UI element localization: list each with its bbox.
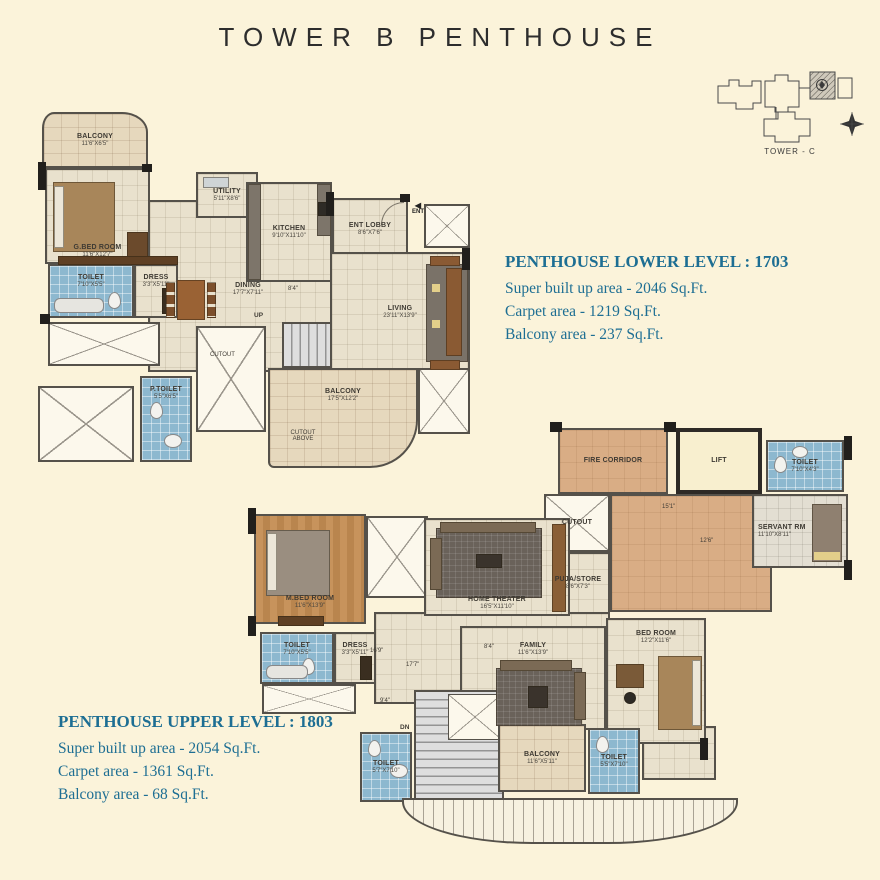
key-plan: TOWER - C	[712, 66, 868, 158]
room-p-toilet: P.TOILET 5'5"X6'5"	[140, 376, 192, 462]
wall-segment	[550, 422, 562, 432]
room-toilet-gbed: TOILET 7'10"X5'5"	[48, 264, 134, 318]
room-toilet-mbed: TOILET 7'10"X5'5"	[260, 632, 334, 684]
entrance-label: ENT	[412, 209, 424, 215]
cabinet-furniture	[552, 524, 566, 612]
page-title: TOWER B PENTHOUSE	[0, 22, 880, 53]
basin-icon	[792, 446, 808, 458]
bed-pillows	[54, 186, 64, 248]
room-label: KITCHEN	[273, 225, 306, 233]
room-dim: 5'11"X8'6"	[214, 196, 241, 203]
room-balcony-upper: BALCONY 11'6"X5'11"	[498, 724, 586, 792]
fire-corridor-floor	[610, 494, 772, 612]
room-label: SERVANT RM	[758, 524, 806, 532]
sofa-furniture	[500, 660, 572, 671]
room-m-bedroom: M.BED ROOM 11'6"X13'9"	[254, 514, 366, 624]
page: TOWER B PENTHOUSE	[0, 0, 880, 880]
upper-level-carpet: Carpet area - 1361 Sq.Ft.	[58, 760, 333, 783]
open-terrace-hatch	[262, 684, 356, 714]
room-dim: 11'10"X8'11"	[758, 532, 791, 539]
room-dim: 5'7"X7'10"	[372, 768, 399, 775]
room-dim: 11'6"X13'9"	[295, 603, 325, 610]
room-label: FIRE CORRIDOR	[584, 457, 643, 465]
up-label: UP	[254, 312, 263, 319]
room-toilet-servant: TOILET 7'10"X4'3"	[766, 440, 844, 492]
key-plan-label: TOWER - C	[712, 147, 868, 156]
dining-table-furniture	[177, 280, 205, 320]
table-furniture	[476, 554, 502, 568]
wall-segment	[40, 314, 50, 324]
room-dim: 17'5"X12'2"	[328, 396, 359, 403]
room-label: ENT LOBBY	[349, 222, 391, 230]
cutout-shaft	[448, 694, 502, 740]
room-toilet-lower-right: TOILET 5'5"X7'10"	[588, 728, 640, 794]
room-dim: 3'3"X5'11"	[143, 282, 170, 289]
dining-chairs	[207, 282, 216, 318]
curved-balcony-terrace	[402, 798, 738, 844]
lower-level-superbuiltup: Super built up area - 2046 Sq.Ft.	[505, 277, 788, 300]
basin-icon	[164, 434, 182, 448]
cutout-shaft	[196, 326, 266, 432]
room-toilet-lower-left: TOILET 5'7"X7'10"	[360, 732, 412, 802]
wall-segment	[400, 194, 410, 202]
table-furniture	[528, 686, 548, 708]
room-dim: 3'3"X5'11"	[342, 650, 369, 657]
sofa-furniture	[430, 538, 442, 590]
toilet-icon	[368, 740, 381, 757]
lower-level-info: PENTHOUSE LOWER LEVEL : 1703 Super built…	[505, 252, 788, 346]
sofa-furniture	[430, 256, 460, 266]
upper-level-balcony: Balcony area - 68 Sq.Ft.	[58, 783, 333, 806]
lower-level-plan: BALCONY 11'6"X6'5" G.BED ROOM 11'6"X12'7…	[30, 100, 470, 472]
upper-level-plan: FIRE CORRIDOR LIFT TOILET 7'10"X4'3" SER…	[248, 420, 872, 848]
entrance-marker: ◀ ENT	[412, 202, 424, 215]
room-dining: DINING 17'7"X7'11"	[216, 282, 280, 297]
cutout-label: CUTOUT	[562, 519, 592, 527]
wardrobe-furniture	[278, 616, 324, 626]
room-label: PUJA/STORE	[555, 576, 602, 584]
room-label: G.BED ROOM	[74, 244, 122, 252]
dimension-label: 8'4"	[484, 644, 494, 650]
room-dim: 11'6"X13'9"	[518, 650, 548, 657]
dimension-label: 9'4"	[380, 698, 390, 704]
cushion	[432, 320, 440, 328]
open-terrace-hatch	[38, 386, 134, 462]
upper-level-info: PENTHOUSE UPPER LEVEL : 1803 Super built…	[58, 712, 333, 806]
room-fire-corridor: FIRE CORRIDOR	[558, 428, 668, 494]
cutout-shaft	[366, 516, 428, 598]
bed-pillows	[692, 660, 701, 726]
key-plan-map	[712, 66, 868, 146]
upper-level-heading: PENTHOUSE UPPER LEVEL : 1803	[58, 712, 333, 732]
wall-segment	[700, 738, 708, 760]
toilet-icon	[596, 736, 609, 753]
room-living: LIVING 23'11"X13'9"	[330, 252, 470, 372]
room-label: TOILET	[373, 760, 399, 768]
room-dim: 5'5"X6'5"	[154, 394, 178, 401]
room-dim: 7'10"X4'3"	[791, 467, 818, 474]
room-label: LIFT	[711, 457, 727, 465]
wardrobe-furniture	[58, 256, 178, 265]
room-label: UTILITY	[213, 188, 241, 196]
dimension-label: 15'1"	[662, 504, 675, 510]
room-label: DRESS	[342, 642, 367, 650]
room-home-theater: HOME THEATER 16'5"X11'10"	[424, 518, 570, 616]
sofa-furniture	[446, 268, 462, 356]
room-ent-lobby: ENT LOBBY 8'6"X7'6"	[332, 198, 408, 260]
room-dim: 5'5"X7'10"	[600, 762, 627, 769]
room-gbedroom: G.BED ROOM 11'6"X12'7"	[45, 168, 150, 264]
room-label: FAMILY	[520, 642, 546, 650]
room-balcony-gbed: BALCONY 11'6"X6'5"	[42, 112, 148, 168]
room-label: TOILET	[601, 754, 627, 762]
bed-pillows	[267, 533, 277, 591]
room-dim: 16'5"X11'10"	[480, 604, 513, 611]
bathtub-icon	[54, 298, 104, 313]
room-dim: 8'6"X7'3"	[566, 584, 590, 591]
cutout-label: CUTOUT	[210, 352, 235, 358]
lower-level-carpet: Carpet area - 1219 Sq.Ft.	[505, 300, 788, 323]
toilet-icon	[108, 292, 121, 309]
room-dim: 7'10"X5'5"	[77, 282, 104, 289]
toilet-icon	[150, 402, 163, 419]
room-dim: 11'6"X5'11"	[527, 759, 557, 766]
room-label: LIVING	[388, 305, 413, 313]
room-dim: 11'6"X6'5"	[82, 141, 109, 148]
dn-label: DN	[400, 724, 409, 731]
wall-segment	[38, 162, 46, 190]
wall-segment	[664, 422, 676, 432]
room-label: HOME THEATER	[468, 596, 526, 604]
room-label: TOILET	[792, 459, 818, 467]
room-dim: 8'6"X7'6"	[358, 230, 382, 237]
dimension-label: 12'6"	[700, 538, 713, 544]
wall-segment	[326, 192, 334, 216]
room-label: DRESS	[143, 274, 168, 282]
room-bedroom: BED ROOM 12'2"X11'6"	[606, 618, 706, 744]
wall-segment	[844, 436, 852, 460]
dimension-label: 8'4"	[288, 286, 298, 292]
room-label: DINING	[235, 282, 261, 290]
room-dim: 11'6"X12'7"	[82, 252, 112, 259]
room-kitchen: KITCHEN 9'10"X11'10"	[246, 182, 332, 282]
wall-segment	[462, 248, 470, 270]
wall-segment	[844, 560, 852, 580]
room-dim: 17'7"X7'11"	[233, 290, 263, 297]
compass-icon	[840, 112, 864, 136]
wall-segment	[142, 164, 152, 172]
dresser-furniture	[360, 656, 372, 680]
sofa-furniture	[430, 360, 460, 370]
desk-furniture	[616, 664, 644, 688]
sink-icon	[203, 177, 229, 188]
lower-level-balcony: Balcony area - 237 Sq.Ft.	[505, 323, 788, 346]
bathtub-icon	[266, 665, 308, 679]
room-dress-mbed: DRESS 3'3"X5'11"	[334, 632, 376, 684]
wall-segment	[248, 616, 256, 636]
sofa-furniture	[440, 522, 536, 533]
entrance-arrow-icon: ◀	[415, 202, 421, 209]
chair-furniture	[624, 692, 636, 704]
room-dim: 9'10"X11'10"	[272, 233, 305, 240]
dimension-label: 17'7"	[406, 662, 419, 668]
room-label: TOILET	[284, 642, 310, 650]
kitchen-counter	[248, 184, 261, 280]
open-terrace-hatch	[48, 322, 160, 366]
room-servant: SERVANT RM 11'10"X8'11"	[752, 494, 848, 568]
dimension-label: 16'9"	[370, 648, 383, 654]
room-label: P.TOILET	[150, 386, 182, 394]
cutout-above-label: CUTOUT ABOVE	[282, 430, 324, 442]
room-label: TOILET	[78, 274, 104, 282]
room-label: BALCONY	[325, 388, 361, 396]
room-label: BALCONY	[524, 751, 560, 759]
upper-level-superbuiltup: Super built up area - 2054 Sq.Ft.	[58, 737, 333, 760]
room-dim: 23'11"X13'9"	[383, 313, 416, 320]
bed-pillows	[814, 552, 840, 560]
room-dim: 7'10"X5'5"	[283, 650, 310, 657]
wall-segment	[248, 508, 256, 534]
sofa-furniture	[574, 672, 586, 720]
room-label: BALCONY	[77, 133, 113, 141]
lower-level-heading: PENTHOUSE LOWER LEVEL : 1703	[505, 252, 788, 272]
cutout-hatch	[424, 204, 470, 248]
cushion	[432, 284, 440, 292]
room-label: BED ROOM	[636, 630, 676, 638]
room-label: M.BED ROOM	[286, 595, 334, 603]
room-dim: 12'2"X11'6"	[641, 638, 671, 645]
toilet-icon	[774, 456, 787, 473]
room-lift: LIFT	[676, 428, 762, 494]
